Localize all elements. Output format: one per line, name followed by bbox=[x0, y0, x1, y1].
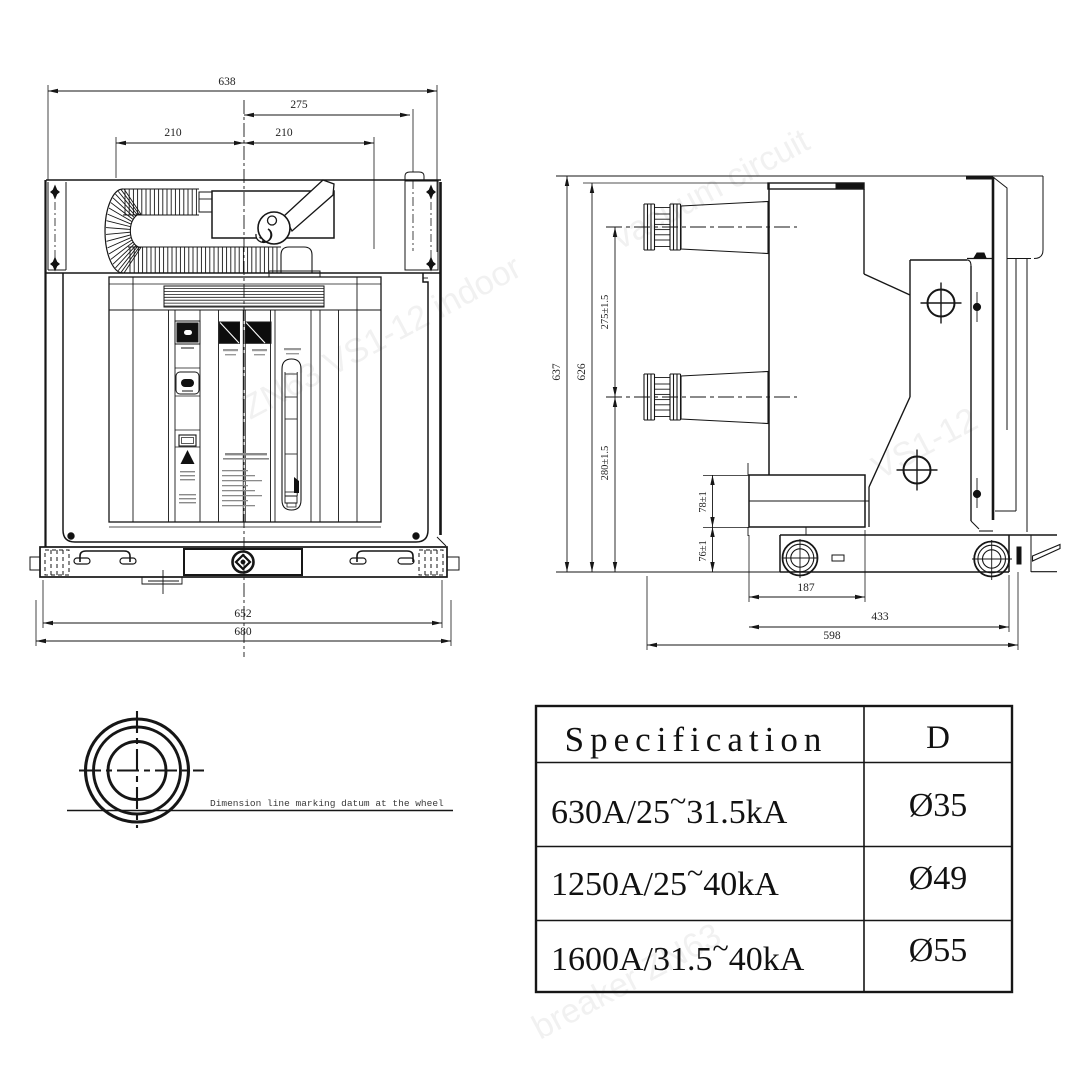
svg-text:Dimension line marking datum a: Dimension line marking datum at the whee… bbox=[210, 798, 444, 809]
svg-text:187: 187 bbox=[797, 582, 815, 594]
svg-text:680: 680 bbox=[234, 626, 252, 638]
svg-text:78±1: 78±1 bbox=[698, 491, 709, 513]
svg-text:76±1: 76±1 bbox=[698, 540, 709, 562]
svg-text:Ø35: Ø35 bbox=[909, 787, 968, 824]
svg-text:598: 598 bbox=[823, 630, 841, 642]
svg-text:Ø49: Ø49 bbox=[909, 860, 968, 897]
svg-text:Specification: Specification bbox=[565, 720, 828, 759]
svg-text:637: 637 bbox=[551, 363, 563, 381]
svg-text:638: 638 bbox=[218, 76, 236, 88]
svg-text:626: 626 bbox=[576, 363, 588, 381]
svg-text:Ø55: Ø55 bbox=[909, 932, 968, 969]
svg-text:433: 433 bbox=[871, 611, 889, 623]
svg-text:275±1.5: 275±1.5 bbox=[600, 295, 611, 330]
svg-text:280±1.5: 280±1.5 bbox=[600, 446, 611, 481]
svg-text:D: D bbox=[926, 720, 950, 756]
svg-text:652: 652 bbox=[234, 608, 252, 620]
svg-text:275: 275 bbox=[290, 99, 308, 111]
svg-text:210: 210 bbox=[164, 127, 182, 139]
svg-text:210: 210 bbox=[275, 127, 293, 139]
